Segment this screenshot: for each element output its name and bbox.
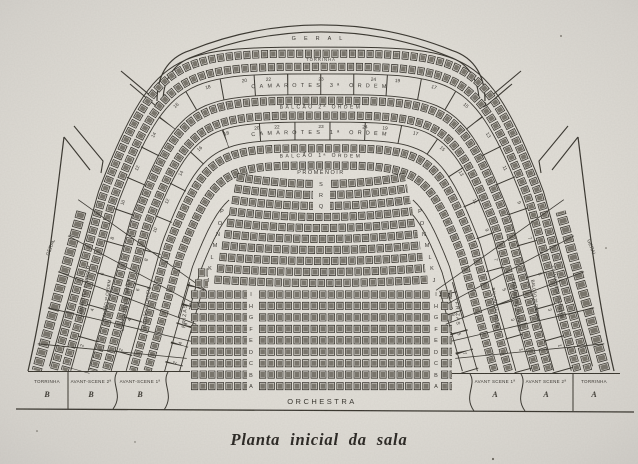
- svg-text:Planta inicial da sala: Planta inicial da sala: [230, 430, 408, 449]
